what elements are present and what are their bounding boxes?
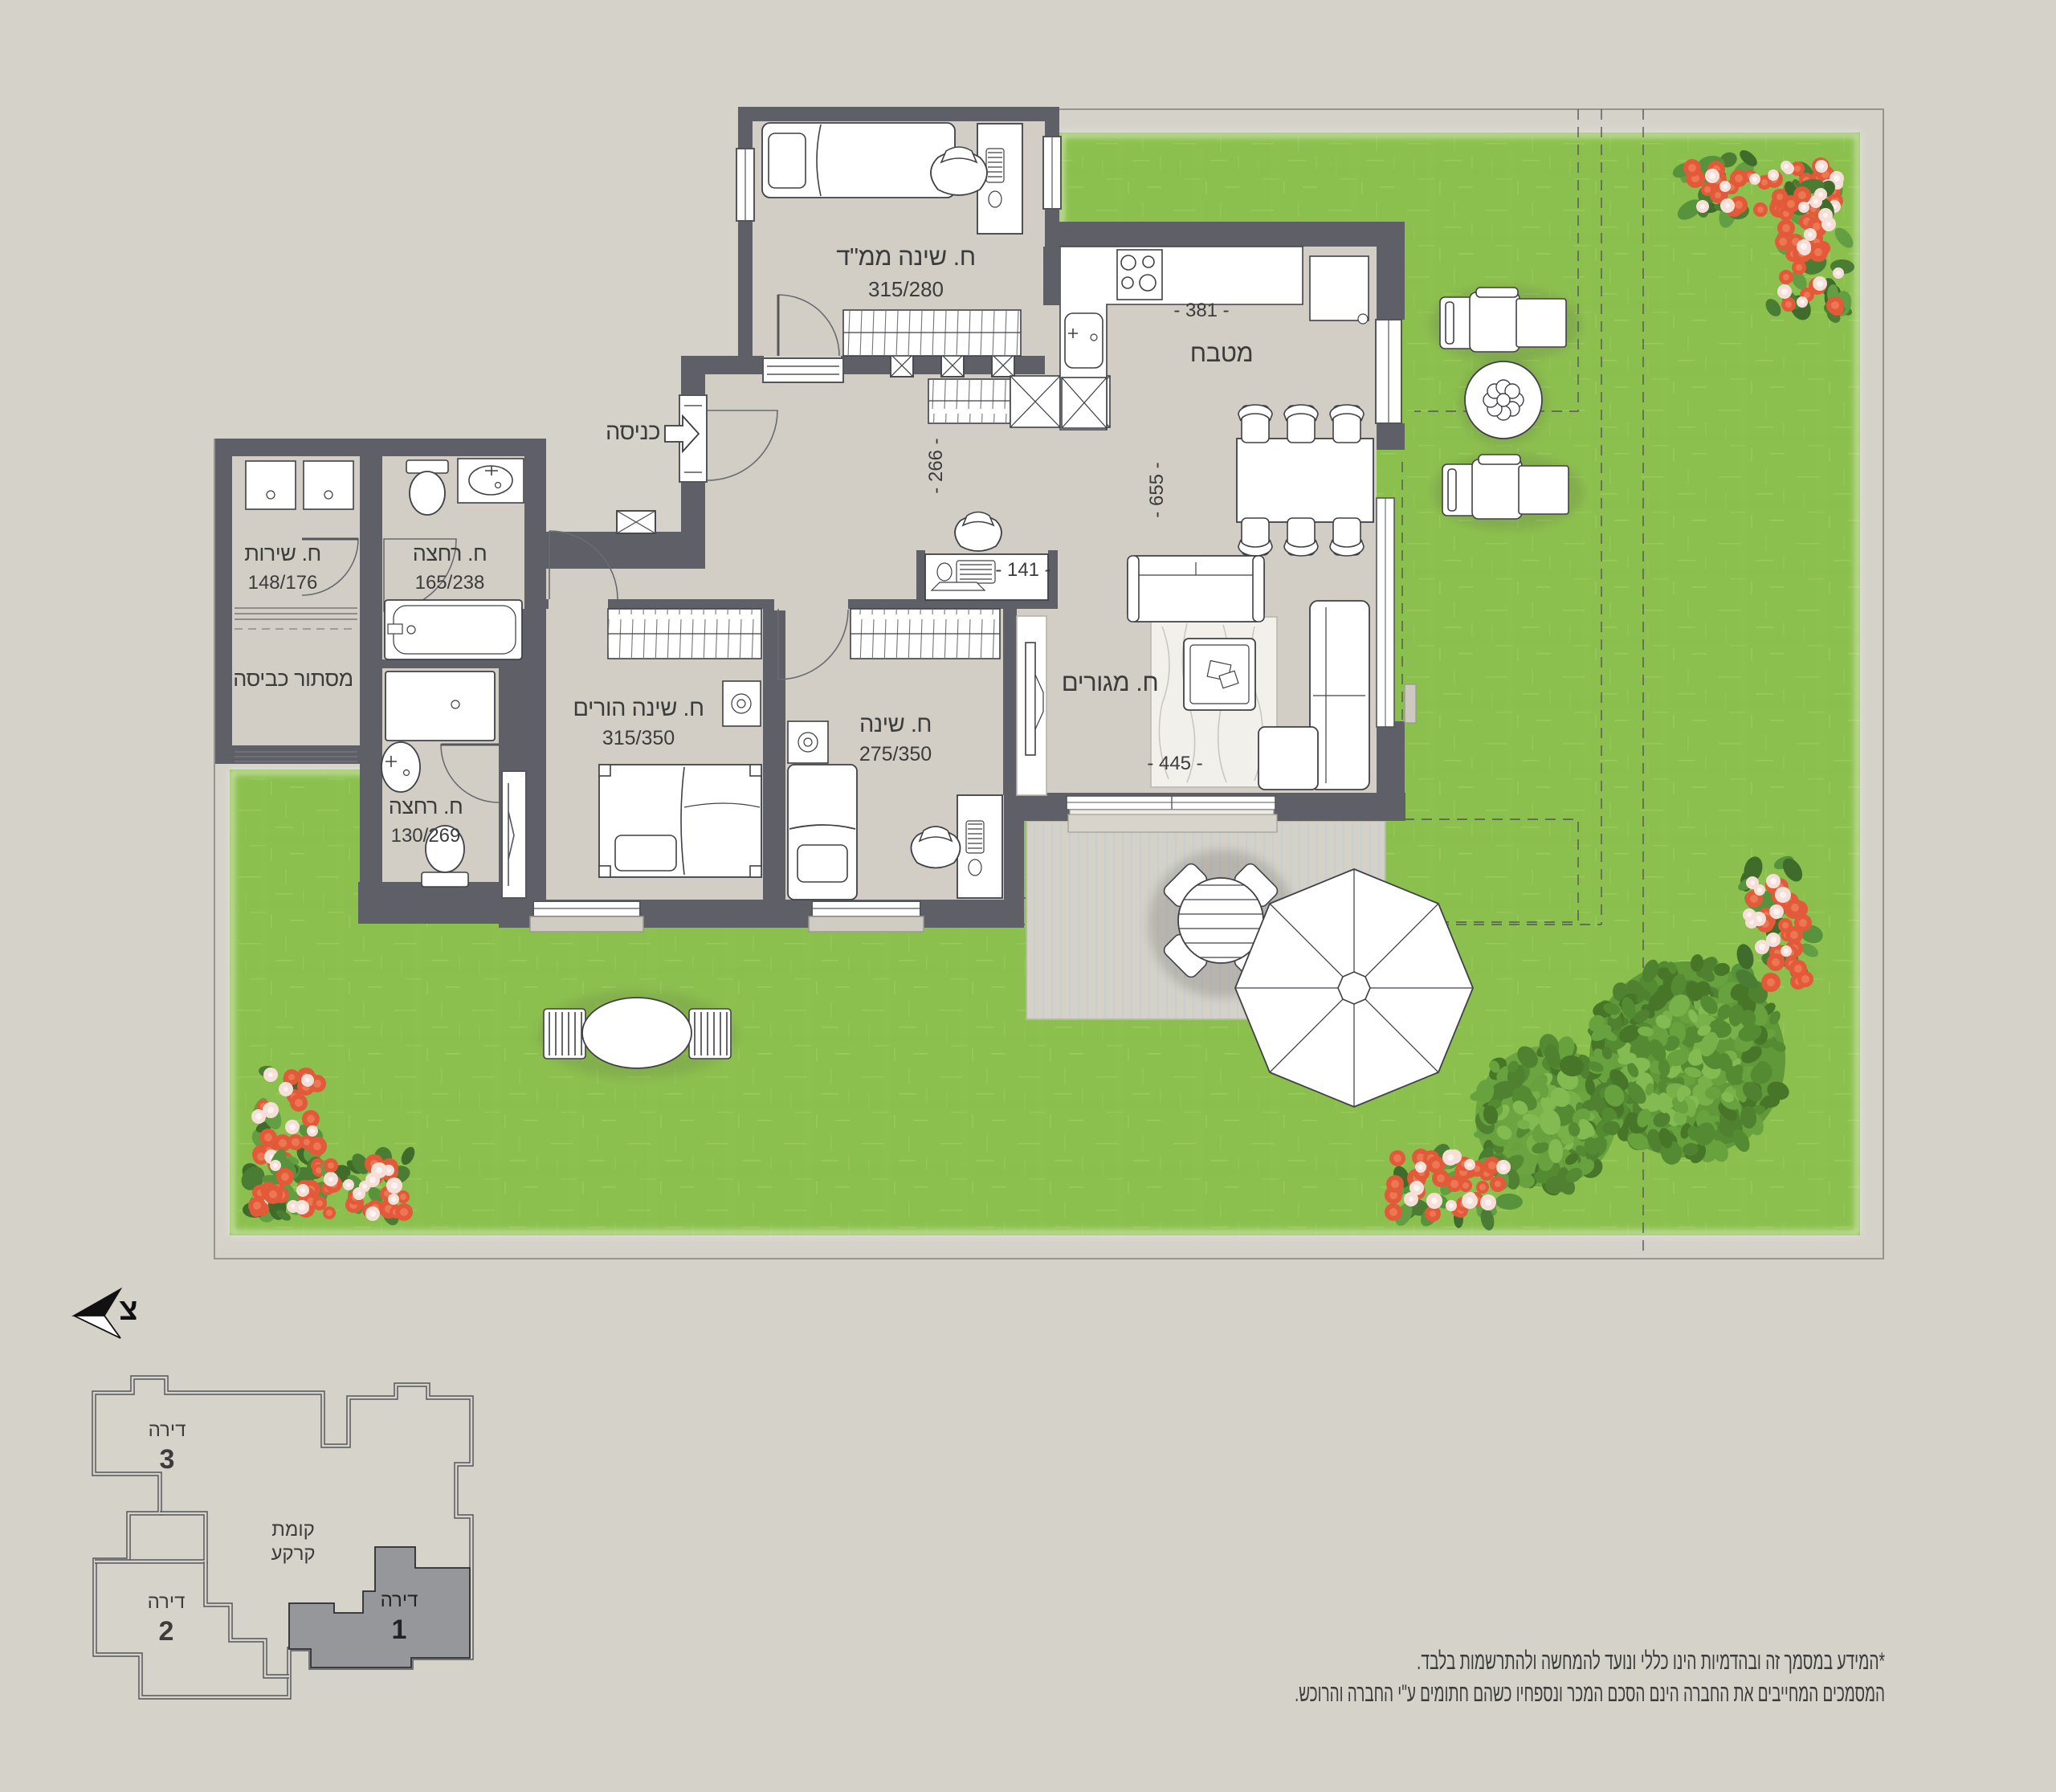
svg-text:ח. מגורים: ח. מגורים (1062, 668, 1159, 696)
svg-text:ח. שירות: ח. שירות (244, 541, 321, 565)
svg-text:ח. שינה: ח. שינה (859, 712, 932, 737)
svg-text:148/176: 148/176 (248, 572, 318, 594)
svg-text:- 381 -: - 381 - (1173, 300, 1229, 321)
svg-text:ח. שינה הורים: ח. שינה הורים (573, 696, 704, 721)
svg-text:קרקע: קרקע (271, 1543, 315, 1565)
svg-text:165/238: 165/238 (415, 572, 485, 594)
svg-text:צ: צ (119, 1293, 137, 1327)
svg-text:דירה: דירה (149, 1419, 186, 1441)
svg-text:3: 3 (160, 1444, 175, 1475)
svg-text:315/280: 315/280 (868, 277, 944, 301)
svg-text:- 445 -: - 445 - (1147, 753, 1202, 774)
svg-text:1: 1 (392, 1614, 407, 1645)
svg-text:- 655 -: - 655 - (1146, 462, 1168, 517)
svg-text:דירה: דירה (148, 1591, 186, 1613)
svg-text:130/269: 130/269 (391, 825, 461, 847)
svg-text:דירה: דירה (381, 1590, 418, 1611)
svg-text:קומת: קומת (271, 1519, 314, 1541)
svg-text:מטבח: מטבח (1190, 339, 1253, 367)
svg-text:2: 2 (159, 1616, 174, 1647)
svg-text:מסתור כביסה: מסתור כביסה (233, 667, 353, 691)
svg-text:275/350: 275/350 (859, 743, 932, 765)
svg-text:- 266 -: - 266 - (925, 438, 947, 493)
svg-text:- 141 -: - 141 - (995, 559, 1050, 581)
svg-text:כניסה: כניסה (606, 419, 660, 445)
svg-text:.המידע במסמך זה ובהדמיות הינו: .המידע במסמך זה ובהדמיות הינו כללי ונועד… (1417, 1648, 1885, 1675)
svg-text:.המסמכים המחייבים את החברה הינ: .המסמכים המחייבים את החברה הינם הסכם המכ… (1295, 1680, 1885, 1707)
svg-text:ח. רחצה: ח. רחצה (389, 794, 463, 818)
svg-text:ח. שינה ממ"ד: ח. שינה ממ"ד (836, 243, 975, 271)
svg-text:ח. רחצה: ח. רחצה (413, 541, 487, 565)
svg-text:315/350: 315/350 (602, 727, 675, 749)
